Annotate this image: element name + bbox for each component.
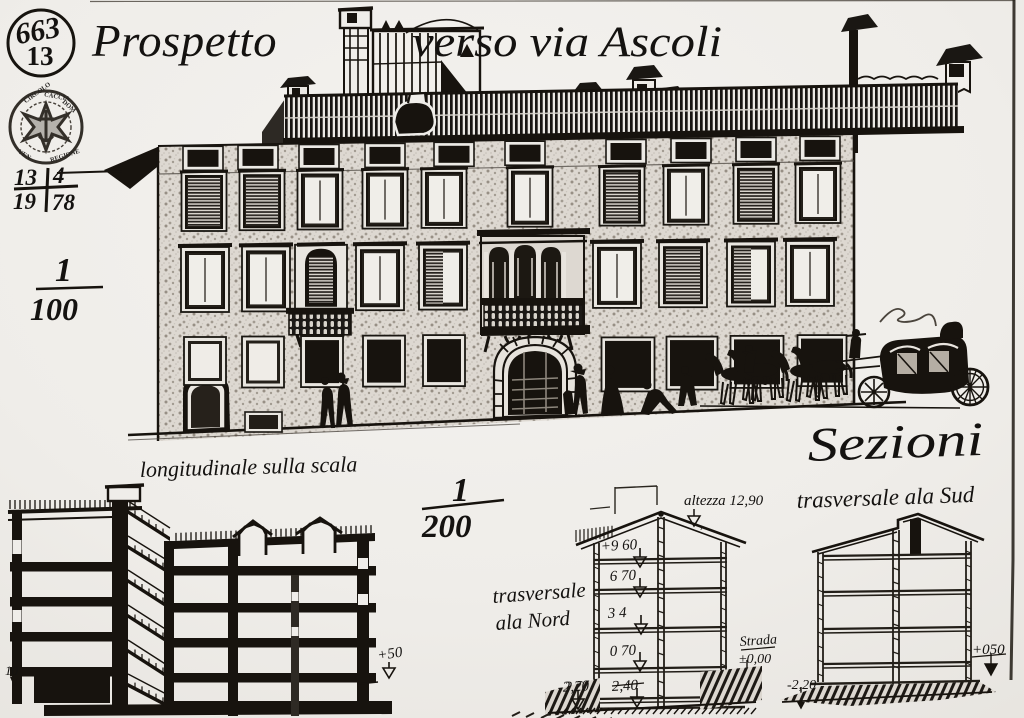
svg-text:200: 200 [421,509,472,545]
svg-text:-2,20: -2,20 [557,678,590,696]
svg-text:13: 13 [14,165,37,190]
svg-text:100: 100 [30,291,78,327]
svg-text:0 70: 0 70 [609,643,637,660]
svg-text:6 70: 6 70 [609,568,637,585]
svg-text:3 4: 3 4 [606,605,627,622]
svg-text:altezza 12,90: altezza 12,90 [684,493,764,509]
svg-text:verso via Ascoli: verso via Ascoli [412,19,722,66]
svg-text:±0,00: ±0,00 [739,652,771,667]
svg-text:Prospetto: Prospetto [91,15,277,66]
svg-text:Sezioni: Sezioni [807,413,985,472]
svg-text:,: , [700,517,703,531]
svg-text:1: 1 [55,252,72,289]
svg-text:19: 19 [13,189,37,214]
svg-text:+9 60: +9 60 [600,537,638,555]
svg-text:4: 4 [52,163,65,188]
svg-text:78: 78 [52,190,76,215]
svg-text:13: 13 [27,41,54,71]
svg-text:10: 10 [5,663,19,678]
